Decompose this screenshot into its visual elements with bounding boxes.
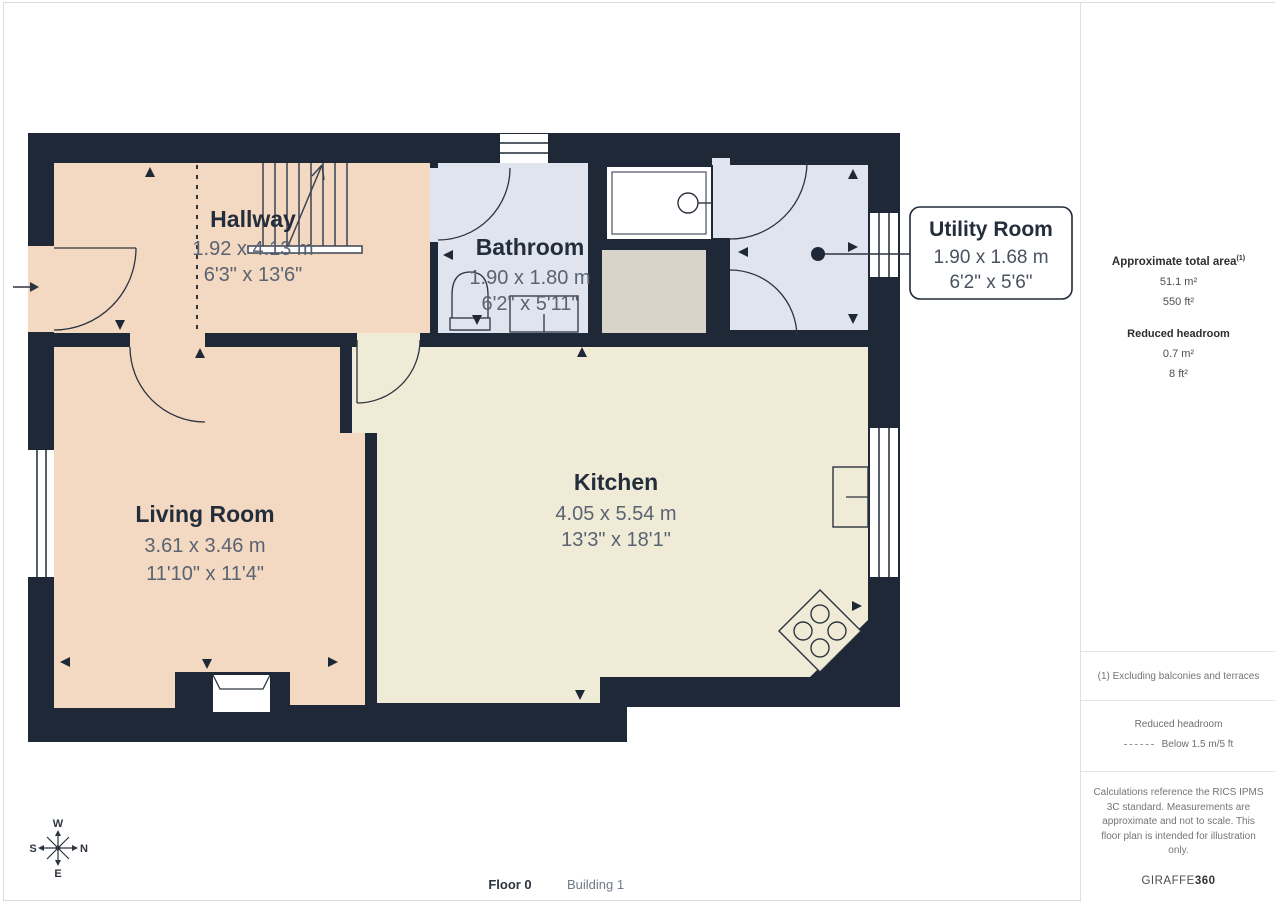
compass-s: S bbox=[29, 843, 36, 855]
floor-plan: Utility Room 1.90 x 1.68 m 6'2" x 5'6" H… bbox=[0, 0, 1080, 905]
footer-floor: Floor 0 bbox=[488, 877, 531, 892]
legend-title: Reduced headroom bbox=[1081, 719, 1276, 730]
bathroom-label: Bathroom bbox=[476, 234, 585, 260]
window-living bbox=[28, 450, 54, 577]
disclaimer-text: Calculations reference the RICS IPMS 3C … bbox=[1081, 772, 1276, 859]
dashed-line-swatch bbox=[1124, 744, 1154, 745]
bathroom-imperial: 6'2" x 5'11" bbox=[481, 293, 578, 315]
utility-room-label: Utility Room bbox=[929, 218, 1053, 241]
brand-name: GIRAFFE bbox=[1141, 875, 1194, 887]
compass-w: W bbox=[53, 818, 64, 830]
brand-logo: GIRAFFE360 bbox=[1081, 875, 1276, 887]
living-room-floor bbox=[54, 347, 365, 708]
utility-room-metric: 1.90 x 1.68 m bbox=[933, 247, 1048, 268]
legend-section: Reduced headroom Below 1.5 m/5 ft bbox=[1081, 700, 1276, 771]
shower bbox=[606, 166, 712, 240]
footnote-text: (1) Excluding balconies and terraces bbox=[1090, 671, 1268, 682]
footnote-section: (1) Excluding balconies and terraces bbox=[1081, 651, 1276, 701]
total-area-m2: 51.1 m² bbox=[1081, 276, 1276, 288]
window-top bbox=[500, 134, 548, 163]
footer-building: Building 1 bbox=[567, 877, 624, 892]
living-room-imperial: 11'10" x 11'4" bbox=[146, 563, 264, 585]
bathroom-door-opening bbox=[430, 168, 438, 242]
area-summary: Approximate total area(1) 51.1 m² 550 ft… bbox=[1081, 255, 1276, 380]
utility-room-imperial: 6'2" x 5'6" bbox=[949, 272, 1032, 293]
fireplace bbox=[213, 675, 270, 712]
hallway-label: Hallway bbox=[210, 206, 296, 232]
kitchen-imperial: 13'3" x 18'1" bbox=[561, 529, 671, 551]
utility-door-opening bbox=[712, 158, 730, 238]
living-door-opening bbox=[130, 333, 205, 347]
kitchen-floor bbox=[352, 347, 868, 703]
utility-room-callout: Utility Room 1.90 x 1.68 m 6'2" x 5'6" bbox=[910, 207, 1072, 299]
legend-label: Below 1.5 m/5 ft bbox=[1162, 739, 1234, 750]
disclaimer-section: Calculations reference the RICS IPMS 3C … bbox=[1081, 771, 1276, 887]
kitchen-door-opening bbox=[357, 333, 420, 347]
total-area-ft2: 550 ft² bbox=[1081, 296, 1276, 308]
hallway-labels: Hallway 1.92 x 4.13 m 6'3" x 13'6" bbox=[192, 206, 313, 286]
living-room-metric: 3.61 x 3.46 m bbox=[144, 535, 265, 557]
reduced-headroom-title: Reduced headroom bbox=[1081, 328, 1276, 340]
reduced-headroom-ft2: 8 ft² bbox=[1081, 368, 1276, 380]
compass-n: N bbox=[80, 843, 88, 855]
sidebar: Approximate total area(1) 51.1 m² 550 ft… bbox=[1080, 3, 1276, 902]
living-room-label: Living Room bbox=[135, 501, 274, 527]
reduced-headroom-m2: 0.7 m² bbox=[1081, 348, 1276, 360]
window-utility bbox=[870, 213, 898, 277]
kitchen-metric: 4.05 x 5.54 m bbox=[555, 503, 676, 525]
bathroom-labels: Bathroom 1.90 x 1.80 m 6'2" x 5'11" bbox=[469, 234, 590, 315]
compass-e: E bbox=[54, 868, 61, 880]
bathroom-metric: 1.90 x 1.80 m bbox=[469, 267, 590, 289]
utility-floor bbox=[730, 165, 868, 330]
window-kitchen bbox=[870, 428, 898, 577]
total-area-footnote-ref: (1) bbox=[1237, 255, 1246, 262]
living-room-labels: Living Room 3.61 x 3.46 m 11'10" x 11'4" bbox=[135, 501, 274, 585]
kitchen-label: Kitchen bbox=[574, 469, 658, 495]
compass-icon bbox=[38, 830, 78, 866]
brand-suffix: 360 bbox=[1195, 875, 1216, 887]
cupboard bbox=[602, 250, 706, 333]
camera-dot bbox=[811, 247, 825, 261]
total-area-title-text: Approximate total area bbox=[1112, 256, 1237, 268]
hallway-imperial: 6'3" x 13'6" bbox=[204, 264, 303, 286]
total-area-title: Approximate total area(1) bbox=[1081, 255, 1276, 268]
kitchen-counter-sink bbox=[833, 467, 868, 527]
hallway-metric: 1.92 x 4.13 m bbox=[192, 238, 313, 260]
